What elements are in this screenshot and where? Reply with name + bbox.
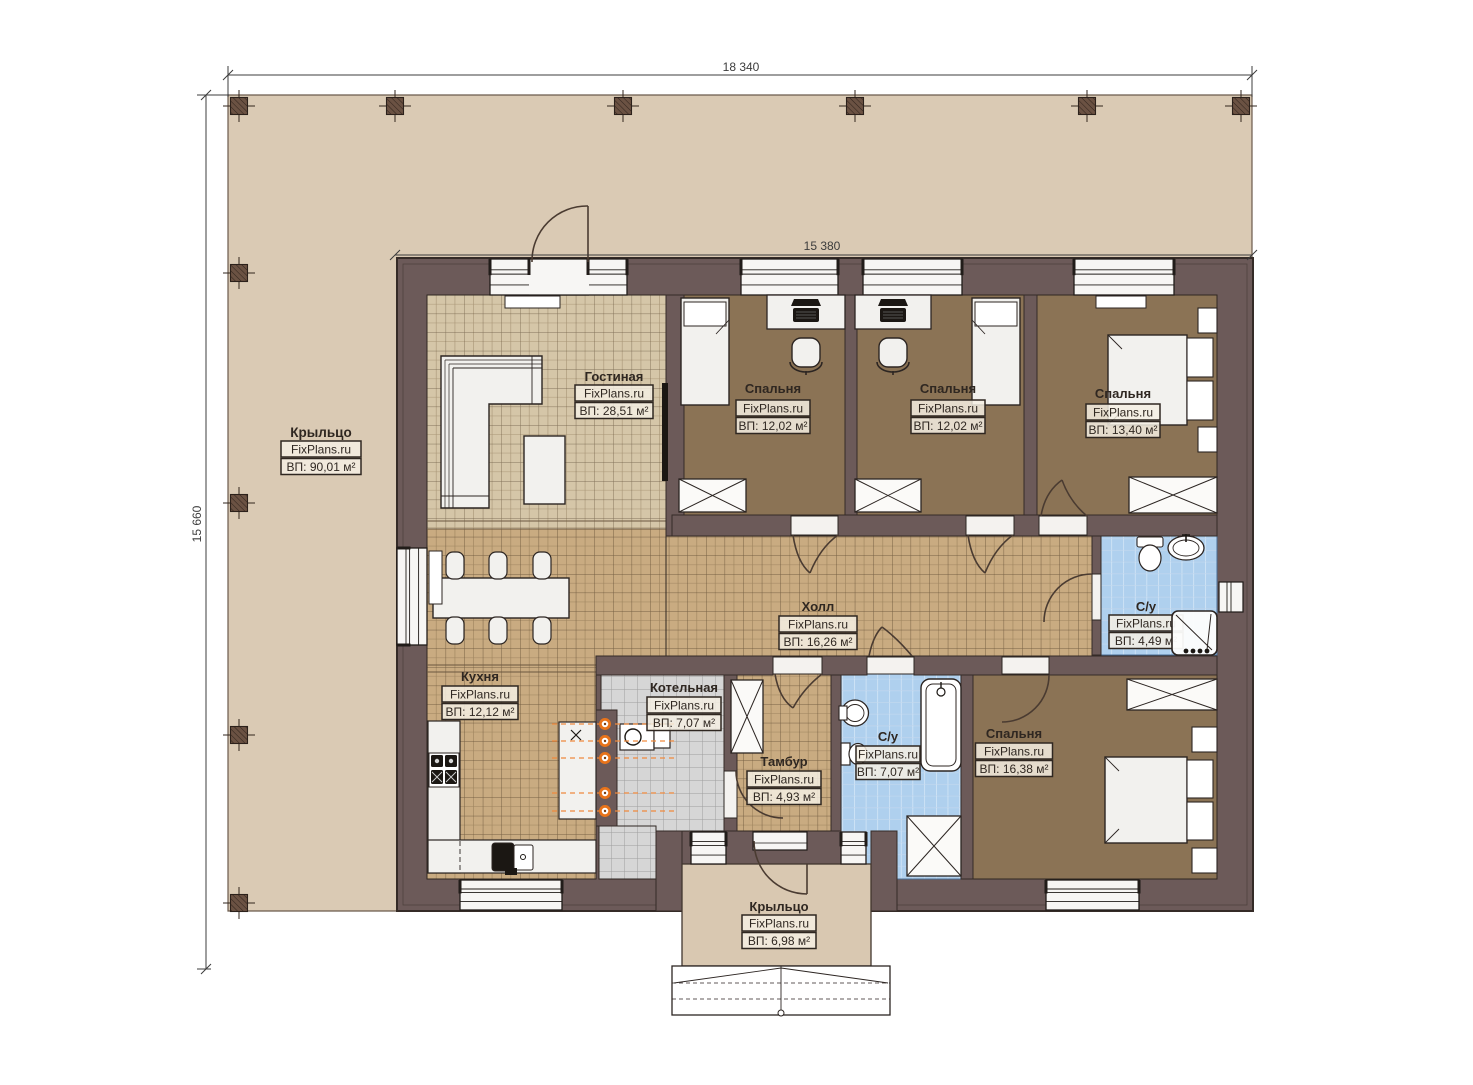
svg-text:ВП: 16,26 м²: ВП: 16,26 м² [784, 635, 853, 649]
svg-text:Крыльцо: Крыльцо [749, 899, 808, 914]
svg-text:Спальня: Спальня [986, 726, 1042, 741]
svg-text:ВП: 7,07 м²: ВП: 7,07 м² [857, 765, 919, 779]
svg-text:ВП: 90,01 м²: ВП: 90,01 м² [287, 460, 356, 474]
svg-text:С/у: С/у [1136, 599, 1157, 614]
svg-text:ВП: 12,12 м²: ВП: 12,12 м² [446, 705, 515, 719]
svg-text:FixPlans.ru: FixPlans.ru [918, 402, 978, 416]
svg-text:Спальня: Спальня [745, 381, 801, 396]
svg-text:Гостиная: Гостиная [585, 369, 644, 384]
svg-text:ВП: 6,98 м²: ВП: 6,98 м² [748, 934, 810, 948]
svg-text:FixPlans.ru: FixPlans.ru [858, 748, 918, 762]
svg-text:FixPlans.ru: FixPlans.ru [654, 699, 714, 713]
svg-text:FixPlans.ru: FixPlans.ru [450, 688, 510, 702]
svg-text:Котельная: Котельная [650, 680, 718, 695]
svg-text:FixPlans.ru: FixPlans.ru [754, 773, 814, 787]
svg-text:Тамбур: Тамбур [760, 754, 807, 769]
svg-text:Крыльцо: Крыльцо [290, 425, 351, 440]
svg-text:15 380: 15 380 [804, 239, 841, 253]
svg-text:FixPlans.ru: FixPlans.ru [743, 402, 803, 416]
svg-text:ВП: 7,07 м²: ВП: 7,07 м² [653, 716, 715, 730]
svg-text:Спальня: Спальня [1095, 386, 1151, 401]
svg-text:FixPlans.ru: FixPlans.ru [749, 917, 809, 931]
svg-text:ВП: 28,51 м²: ВП: 28,51 м² [580, 404, 649, 418]
svg-text:FixPlans.ru: FixPlans.ru [291, 443, 351, 457]
svg-text:FixPlans.ru: FixPlans.ru [1116, 617, 1176, 631]
svg-text:ВП: 16,38 м²: ВП: 16,38 м² [980, 762, 1049, 776]
svg-text:Холл: Холл [802, 599, 835, 614]
svg-text:15 660: 15 660 [190, 505, 204, 542]
svg-text:С/у: С/у [878, 729, 899, 744]
svg-text:ВП: 12,02 м²: ВП: 12,02 м² [739, 419, 808, 433]
svg-text:FixPlans.ru: FixPlans.ru [788, 618, 848, 632]
svg-text:FixPlans.ru: FixPlans.ru [984, 745, 1044, 759]
svg-text:FixPlans.ru: FixPlans.ru [1093, 406, 1153, 420]
svg-text:ВП: 4,49 м²: ВП: 4,49 м² [1115, 634, 1177, 648]
svg-text:ВП: 13,40 м²: ВП: 13,40 м² [1089, 423, 1158, 437]
svg-text:18 340: 18 340 [723, 60, 760, 74]
svg-text:Спальня: Спальня [920, 381, 976, 396]
svg-text:ВП: 4,93 м²: ВП: 4,93 м² [753, 790, 815, 804]
svg-text:ВП: 12,02 м²: ВП: 12,02 м² [914, 419, 983, 433]
svg-text:FixPlans.ru: FixPlans.ru [584, 387, 644, 401]
svg-text:Кухня: Кухня [461, 669, 499, 684]
